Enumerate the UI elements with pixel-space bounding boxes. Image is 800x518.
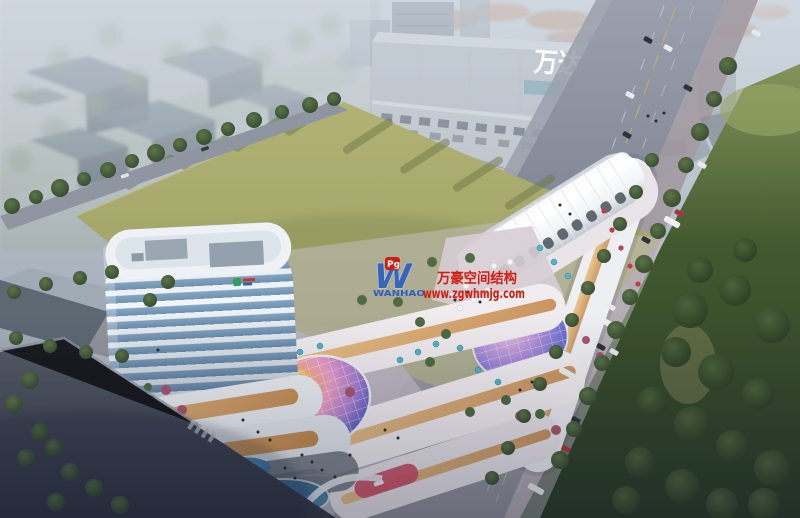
aerial-rendering: 万达广场 — [0, 0, 800, 518]
rendering-canvas: 万达广场 — [0, 0, 800, 518]
